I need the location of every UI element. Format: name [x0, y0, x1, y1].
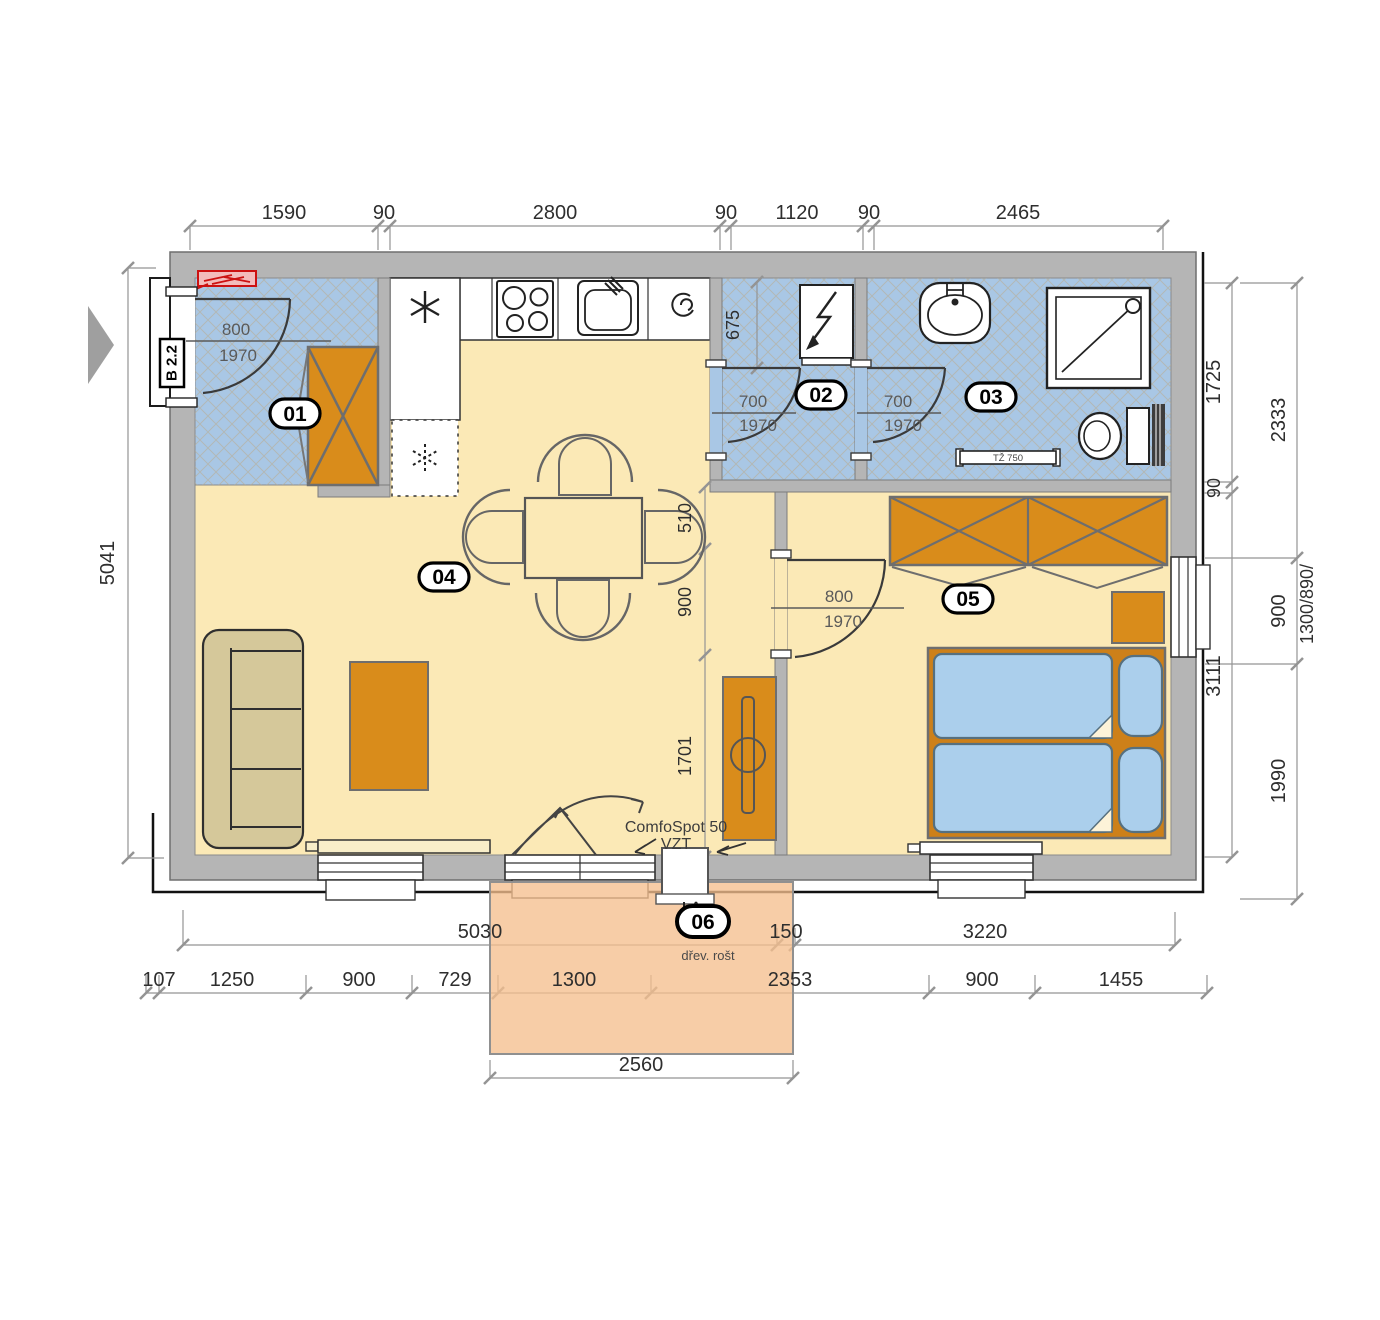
radiator-cap — [306, 842, 318, 851]
room-label-01: 01 — [283, 403, 307, 426]
door-size: 800 — [825, 587, 853, 606]
shower-head — [1126, 299, 1140, 313]
heater-base — [802, 358, 851, 365]
door-jamb — [706, 453, 726, 460]
dim-label: 900 — [675, 587, 695, 617]
dim-label: 2560 — [619, 1054, 664, 1076]
door-size: 1970 — [884, 416, 922, 435]
entry-door-tag: B 2.2 — [164, 345, 181, 381]
dim-label: 107 — [142, 969, 175, 991]
terrace-area — [490, 882, 793, 1054]
room-label-05: 05 — [956, 588, 980, 611]
bedroom-items — [890, 497, 1167, 854]
dim-label-window: 1300/890/ — [1297, 564, 1317, 644]
vent-label-2: VZT — [661, 836, 691, 853]
dim-label: 1300 — [552, 969, 597, 991]
room02-items — [800, 285, 853, 365]
floor-plan-svg: TŽ 750 B 2.2 — [0, 0, 1380, 1320]
dim-label: 1250 — [210, 969, 255, 991]
door-gap-05 — [775, 557, 787, 652]
door-jamb — [851, 360, 871, 367]
dim-label: 3111 — [1203, 655, 1225, 697]
towel-radiator-label: TŽ 750 — [993, 453, 1023, 464]
dining-table — [525, 498, 642, 578]
window-bedroom-sill — [938, 880, 1025, 898]
nightstand — [1112, 592, 1164, 643]
door-size: 800 — [222, 320, 250, 339]
window-bedroom-east — [1171, 557, 1196, 657]
chair-seat — [557, 580, 609, 637]
wall-stub-hallway — [318, 485, 390, 497]
entrance-jamb — [166, 398, 197, 407]
toilet-cistern — [1127, 408, 1149, 464]
vent-unit — [662, 848, 708, 898]
window-bedroom — [930, 855, 1033, 880]
room-label-03: 03 — [979, 386, 1002, 409]
dim-label: 1590 — [262, 202, 307, 224]
pillow — [1119, 656, 1162, 736]
dim-label: 90 — [858, 202, 880, 224]
washbasin — [920, 283, 990, 343]
dim-label: 900 — [1268, 594, 1290, 627]
dim-label: 1120 — [775, 202, 818, 224]
door-jamb — [771, 650, 791, 658]
radiator-bedroom — [920, 842, 1042, 854]
door-jamb — [706, 360, 726, 367]
radiator-living — [318, 840, 490, 853]
dim-label: 3220 — [963, 921, 1008, 943]
dim-label: 1990 — [1268, 759, 1290, 804]
terrace-note: dřev. rošt — [681, 948, 735, 963]
door-gap-03 — [855, 365, 867, 455]
door-size: 1970 — [739, 416, 777, 435]
dim-label: 1701 — [675, 736, 695, 776]
dim-label: 900 — [342, 969, 375, 991]
dim-label: 1455 — [1099, 969, 1144, 991]
dim-label: 729 — [438, 969, 471, 991]
window-living — [318, 855, 423, 880]
door-size: 700 — [884, 392, 912, 411]
entrance-jamb — [166, 287, 197, 296]
dim-label: 900 — [965, 969, 998, 991]
radiator-cap — [908, 844, 920, 852]
door-size: 1970 — [824, 612, 862, 631]
pillow — [1119, 748, 1162, 832]
room-label-06: 06 — [691, 911, 714, 934]
entrance-arrow-icon — [88, 306, 114, 384]
door-jamb — [851, 453, 871, 460]
dim-label: 90 — [1204, 478, 1224, 498]
dim-label: 2353 — [768, 969, 813, 991]
dim-label: 5041 — [97, 541, 119, 586]
wall-radiator — [1152, 404, 1165, 466]
sofa — [203, 630, 303, 848]
chair-seat — [559, 438, 611, 495]
vent-label-1: ComfoSpot 50 — [625, 819, 727, 836]
door-size: 700 — [739, 392, 767, 411]
window-living-sill — [326, 880, 415, 900]
dim-label: 5030 — [458, 921, 503, 943]
dim-label: 2333 — [1268, 398, 1290, 443]
window-east-sill — [1196, 565, 1210, 649]
door-gap-02 — [710, 365, 722, 455]
dim-label: 150 — [769, 921, 802, 943]
room-label-02: 02 — [809, 384, 832, 407]
duvet — [934, 744, 1112, 832]
dim-label: 90 — [373, 202, 395, 224]
dim-chain-top — [190, 226, 1163, 250]
basin-drain — [952, 299, 959, 306]
dim-label: 90 — [715, 202, 737, 224]
chair-seat — [466, 511, 523, 563]
wall-hallway-kitchen — [378, 278, 390, 497]
toilet-bowl — [1079, 413, 1121, 459]
door-jamb — [771, 550, 791, 558]
dim-label: 675 — [723, 310, 743, 340]
coffee-table — [350, 662, 428, 790]
floor-plan-canvas: TŽ 750 B 2.2 — [0, 0, 1380, 1320]
duvet — [934, 654, 1112, 738]
dim-label: 2465 — [996, 202, 1041, 224]
dim-label: 2800 — [533, 202, 578, 224]
wall-bath-bedroom — [710, 480, 1171, 492]
room-label-04: 04 — [432, 566, 456, 589]
door-size: 1970 — [219, 346, 257, 365]
dim-label: 1725 — [1203, 360, 1225, 405]
dim-label: 510 — [675, 503, 695, 533]
